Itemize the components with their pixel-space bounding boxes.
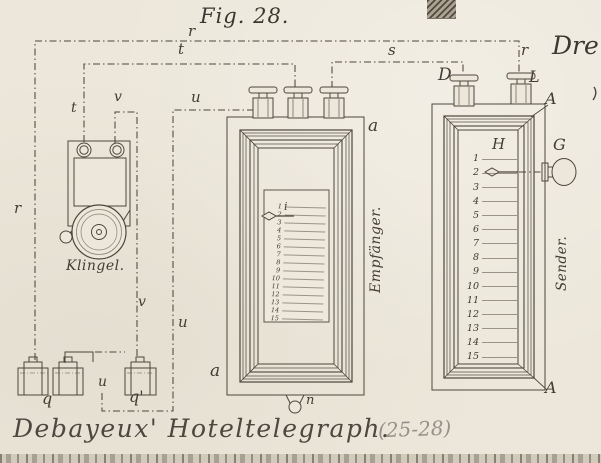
scale-number: 15 (462, 352, 479, 362)
scale-line (482, 342, 517, 343)
wire-label-r-top: r (188, 24, 195, 39)
receiver-post-2 (284, 87, 312, 118)
scale-line (482, 201, 517, 202)
plate-edge-strip (0, 454, 601, 463)
corner-text: Dre (552, 33, 599, 58)
scale-number: 2 (268, 211, 282, 218)
scale-row: 14 (462, 336, 517, 350)
scale-number: 1 (462, 154, 479, 164)
wire-label-v-top: v (114, 90, 122, 104)
scale-row: 11 (462, 293, 517, 307)
battery-right-label: q' (129, 389, 144, 405)
battery-left-label: q (42, 391, 52, 407)
scale-line (284, 238, 325, 240)
scale-number: 3 (462, 183, 479, 193)
scale-line (482, 229, 517, 230)
figure-title: Fig. 28. (200, 6, 289, 27)
plate-caption-ref: (25-28) (378, 418, 452, 441)
scale-row: 1 (462, 152, 517, 166)
scale-line (283, 270, 324, 272)
scale-line (282, 318, 323, 320)
plate-caption: Debayeux' Hoteltelegraph. (13, 416, 390, 441)
scale-line (283, 286, 324, 288)
scale-number: 4 (462, 197, 479, 207)
scale-number: 6 (267, 243, 281, 250)
scale-line (282, 302, 323, 304)
scale-line (482, 357, 517, 358)
scale-number: 4 (267, 227, 281, 234)
bell-label: Klingel. (66, 259, 125, 273)
receiver-post-1 (249, 87, 277, 118)
wire-label-t-bell: t (71, 101, 77, 115)
sender-label: Sender. (556, 236, 570, 291)
scale-line (482, 300, 517, 301)
scale-line (285, 214, 326, 216)
scale-line (283, 278, 324, 280)
scale-number: 7 (267, 251, 281, 258)
wire-label-s: s (388, 43, 396, 58)
scale-number: 12 (462, 310, 479, 320)
wire-label-r-right: r (521, 43, 528, 58)
scale-number: 8 (266, 259, 280, 266)
scale-line (482, 159, 517, 160)
figure-plate: Fig. 28. Dre Debayeux' Hoteltelegraph. (… (0, 0, 601, 463)
receiver-terminal-label-top: a (368, 118, 378, 135)
receiver-terminal-label-bottom: a (210, 363, 220, 380)
scale-line (284, 254, 325, 256)
scale-line (482, 328, 517, 329)
scale-line (482, 173, 517, 174)
scale-row: 4 (462, 194, 517, 208)
sender-scale: 1 2 3 4 5 6 7 8 9 10 11 12 13 14 15 (462, 152, 517, 364)
scale-line (482, 258, 517, 259)
scale-number: 6 (462, 225, 479, 235)
scale-line (482, 243, 517, 244)
sender-post-d (450, 75, 478, 106)
sender-post-d-label: D (438, 67, 452, 84)
sender-knob-label: G (553, 137, 566, 153)
receiver-label: Empfänger. (369, 206, 383, 293)
scale-line (482, 187, 517, 188)
sender-header-label: H (492, 137, 505, 152)
scale-number: 15 (265, 315, 279, 322)
scale-number: 5 (462, 211, 479, 221)
scale-number: 3 (267, 219, 281, 226)
scale-line (482, 314, 517, 315)
scale-number: 5 (267, 235, 281, 242)
scale-line (285, 206, 326, 208)
scale-number: 14 (462, 338, 479, 348)
scale-number: 10 (266, 275, 280, 282)
scale-number: 10 (462, 282, 479, 292)
scale-row: 5 (462, 209, 517, 223)
scale-number: 12 (266, 291, 280, 298)
scale-row: 3 (462, 180, 517, 194)
scale-row: 15 (462, 350, 517, 364)
scale-number: 1 (268, 203, 282, 210)
sender-corner-label-bottom: A (545, 380, 557, 396)
sender-post-l-label: L (529, 69, 540, 85)
scale-row: 2 (462, 166, 517, 180)
bell-assembly (60, 141, 130, 259)
scale-row: 9 (462, 265, 517, 279)
scale-line (284, 246, 325, 248)
scale-number: 8 (462, 253, 479, 263)
wire-label-v-mid: v (138, 295, 146, 309)
sender-corner-label-top: A (545, 91, 557, 107)
scale-line (482, 286, 517, 287)
scale-number: 9 (266, 267, 280, 274)
scale-line (284, 230, 325, 232)
scale-row: 15 (265, 314, 323, 324)
scale-row: 7 (462, 237, 517, 251)
scale-row: 6 (462, 223, 517, 237)
wire-label-r-left: r (14, 201, 21, 216)
receiver-knob-label: n (306, 394, 314, 407)
scale-line (482, 215, 517, 216)
scale-line (284, 222, 325, 224)
receiver-post-3 (320, 87, 348, 118)
scale-line (283, 262, 324, 264)
wire-label-u-bottom: u (98, 375, 107, 389)
scale-row: 8 (462, 251, 517, 265)
wire-label-u-top: u (191, 90, 201, 105)
hatched-block (427, 0, 456, 19)
scale-number: 14 (265, 307, 279, 314)
scale-row: 12 (462, 308, 517, 322)
scale-row: 10 (462, 279, 517, 293)
scale-row: 13 (462, 322, 517, 336)
scale-line (282, 310, 323, 312)
scale-number: 7 (462, 239, 479, 249)
scale-number: 9 (462, 267, 479, 277)
receiver-scale: 1 2 3 4 5 6 7 8 9 10 11 12 13 14 15 (265, 202, 326, 323)
scale-number: 13 (265, 299, 279, 306)
scale-number: 11 (266, 283, 280, 290)
scale-line (283, 294, 324, 296)
scale-number: 13 (462, 324, 479, 334)
scale-line (482, 272, 517, 273)
scale-number: 11 (462, 296, 479, 306)
scale-number: 2 (462, 168, 479, 178)
wire-label-u-mid: u (178, 315, 188, 330)
partial-letter-stroke (593, 87, 596, 100)
wire-label-t-top: t (178, 42, 184, 57)
